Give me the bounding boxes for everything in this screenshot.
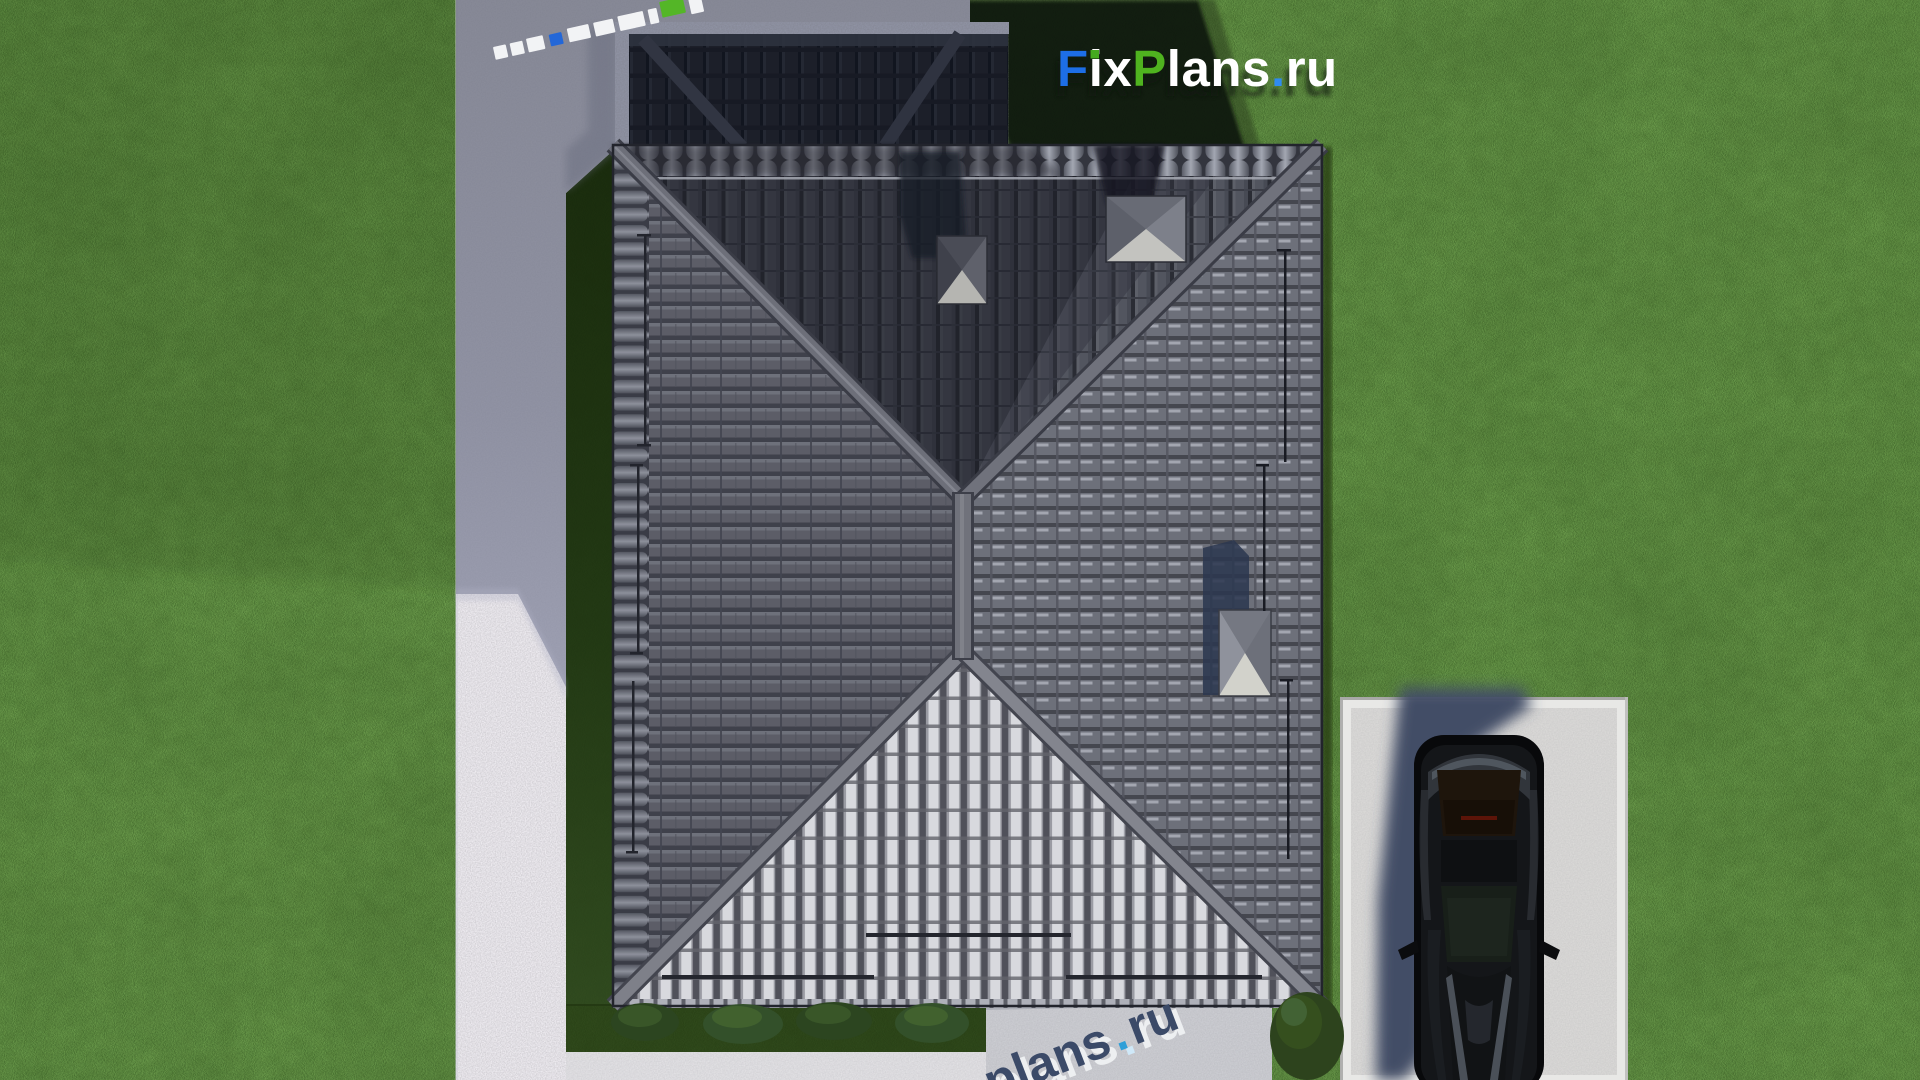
svg-text:.: . (1271, 40, 1286, 97)
svg-text:ru: ru (1286, 40, 1338, 97)
svg-text:F: F (1057, 40, 1089, 97)
svg-text:P: P (1132, 40, 1167, 97)
svg-text:lans: lans (1167, 40, 1271, 97)
svg-text:ix: ix (1089, 40, 1133, 97)
